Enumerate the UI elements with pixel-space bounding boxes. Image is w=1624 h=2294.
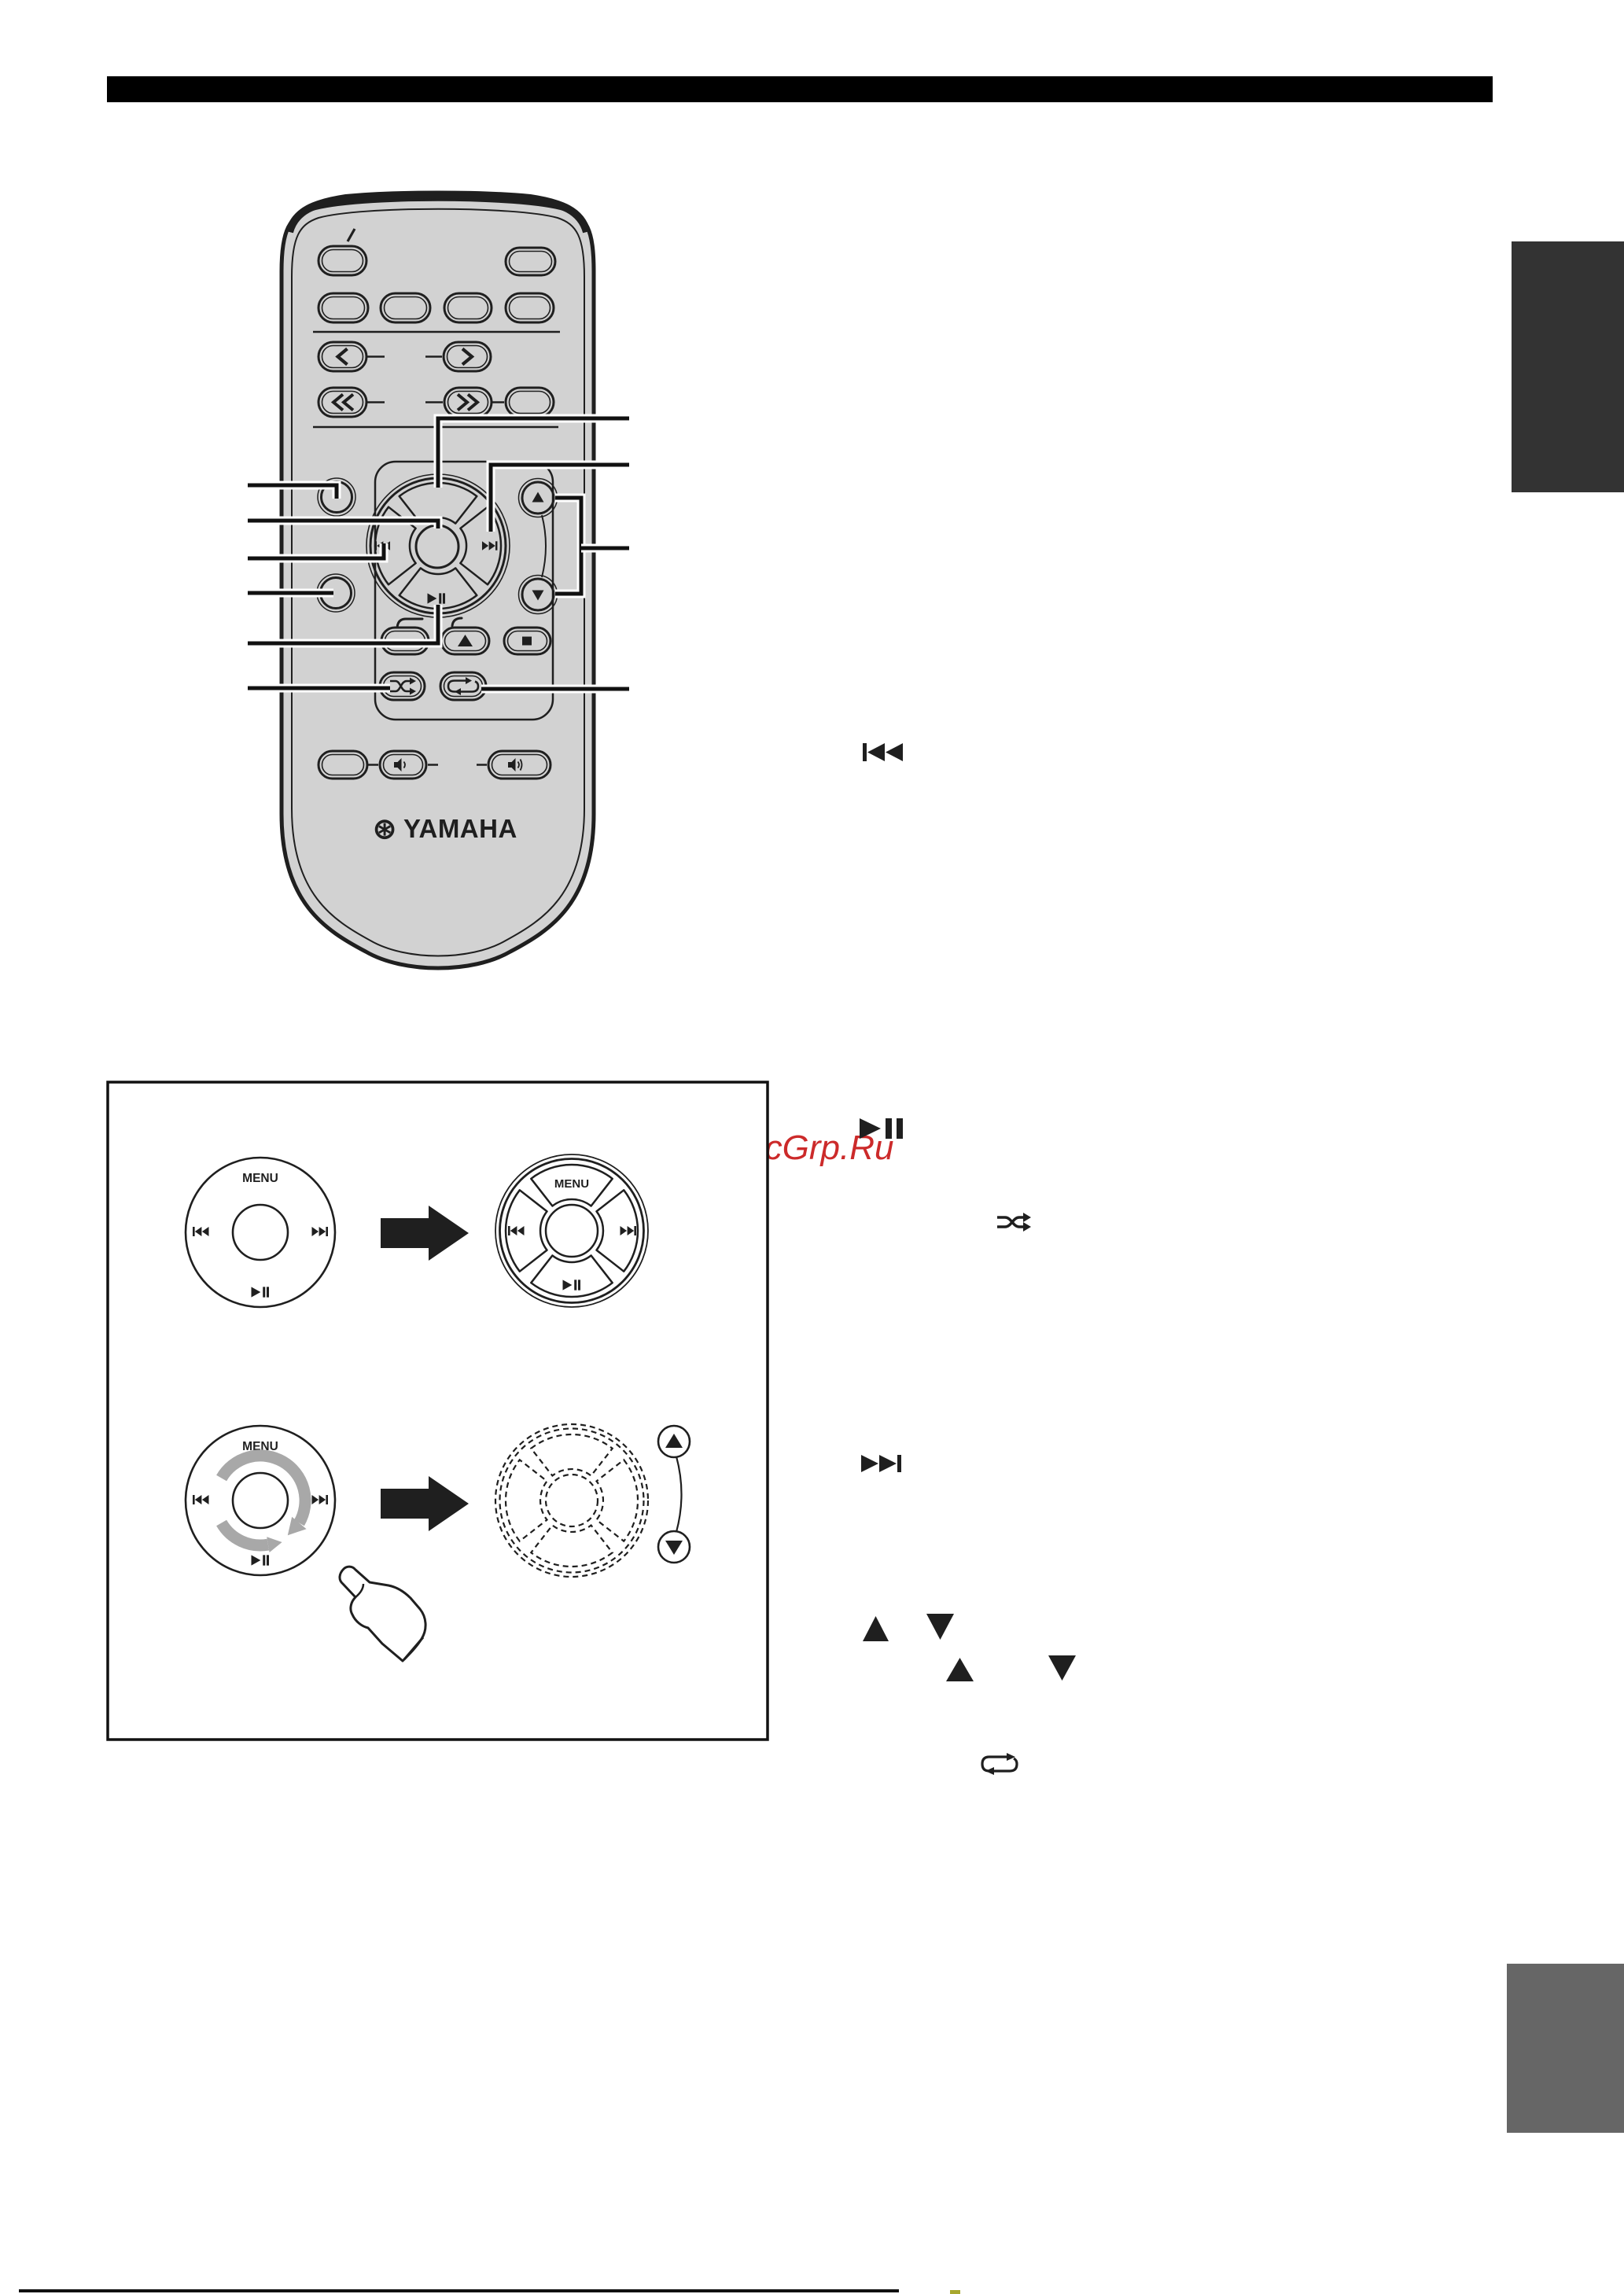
inline-up-triangle-icon bbox=[946, 1658, 974, 1681]
yamaha-logo-text: YAMAHA bbox=[403, 814, 517, 843]
menu-label: MENU bbox=[242, 1172, 278, 1185]
inline-next-track-icon bbox=[861, 1455, 901, 1472]
inline-down-triangle-icon bbox=[926, 1614, 954, 1640]
inline-shuffle-icon bbox=[997, 1213, 1031, 1232]
inline-down-triangle-icon bbox=[1048, 1655, 1076, 1681]
inline-up-triangle-icon bbox=[863, 1616, 889, 1641]
figure-box: MENU MENU bbox=[108, 1082, 768, 1740]
inline-previous-track-icon bbox=[863, 743, 903, 761]
menu-label: MENU bbox=[554, 1177, 589, 1191]
inline-repeat-icon bbox=[982, 1753, 1017, 1775]
inline-play-pause-icon bbox=[860, 1118, 903, 1139]
yamaha-tuning-fork-icon: ⊛ bbox=[373, 812, 396, 845]
line-art-layer: ⊛ YAMAHA MENU bbox=[0, 0, 1624, 2294]
manual-page: McGrp.Ru bbox=[0, 0, 1624, 2294]
stop-square-icon bbox=[522, 637, 532, 646]
remote-illustration: ⊛ YAMAHA bbox=[282, 195, 594, 969]
remote-body bbox=[282, 199, 594, 968]
yamaha-logo: ⊛ YAMAHA bbox=[373, 812, 517, 845]
footer-color-mark bbox=[950, 2290, 960, 2294]
footer-rule bbox=[19, 2289, 899, 2292]
